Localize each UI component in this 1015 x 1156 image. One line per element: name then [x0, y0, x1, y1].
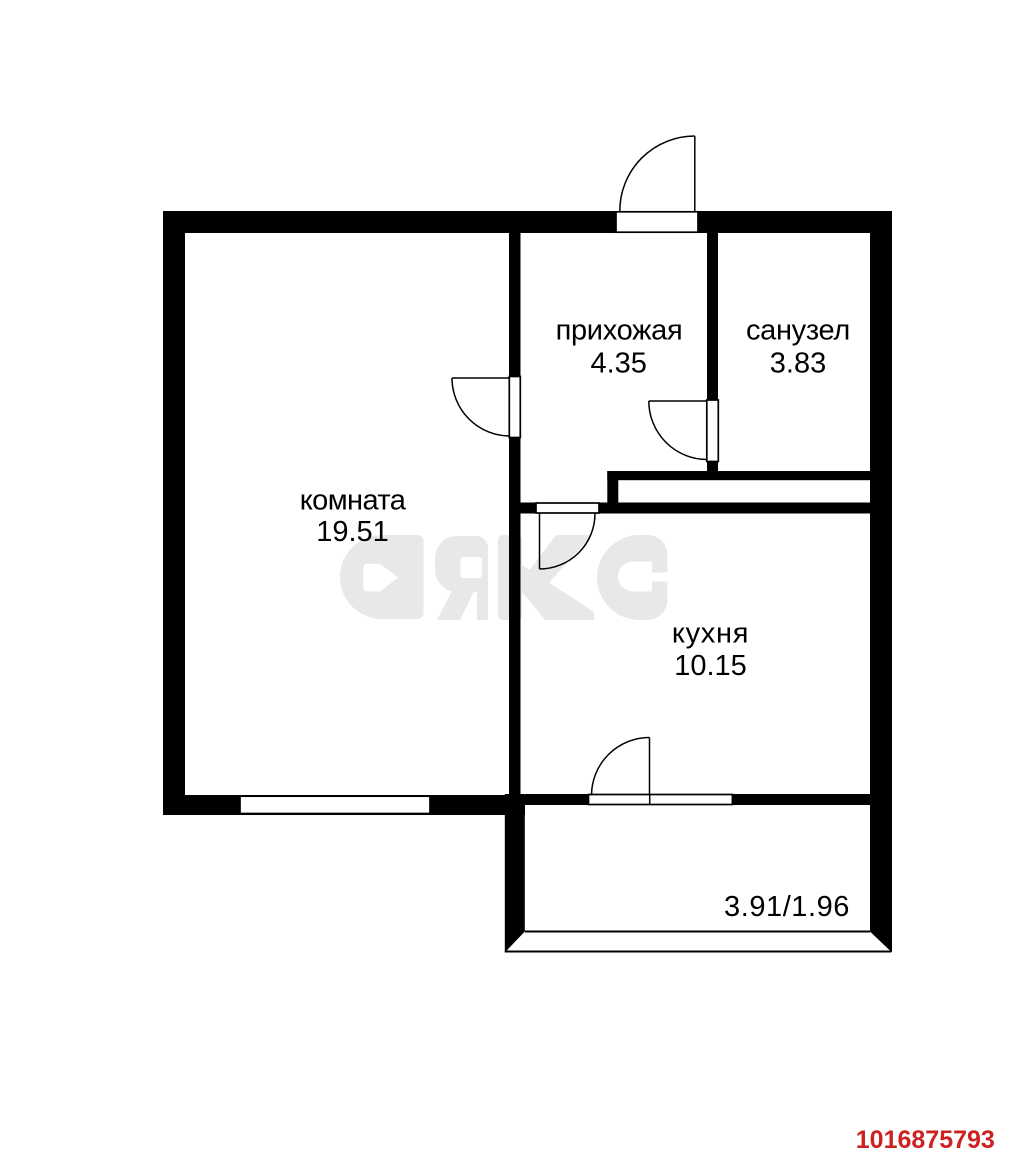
- svg-text:3.83: 3.83: [770, 348, 826, 380]
- svg-text:19.51: 19.51: [316, 516, 389, 548]
- svg-text:прихожая: прихожая: [556, 315, 683, 347]
- svg-text:1016875793: 1016875793: [856, 1126, 995, 1154]
- svg-text:кухня: кухня: [672, 618, 749, 650]
- svg-text:4.35: 4.35: [590, 348, 646, 380]
- svg-text:3.91/1.96: 3.91/1.96: [724, 891, 850, 923]
- svg-text:комната: комната: [300, 485, 407, 517]
- svg-text:10.15: 10.15: [674, 650, 747, 682]
- svg-text:санузел: санузел: [746, 315, 850, 347]
